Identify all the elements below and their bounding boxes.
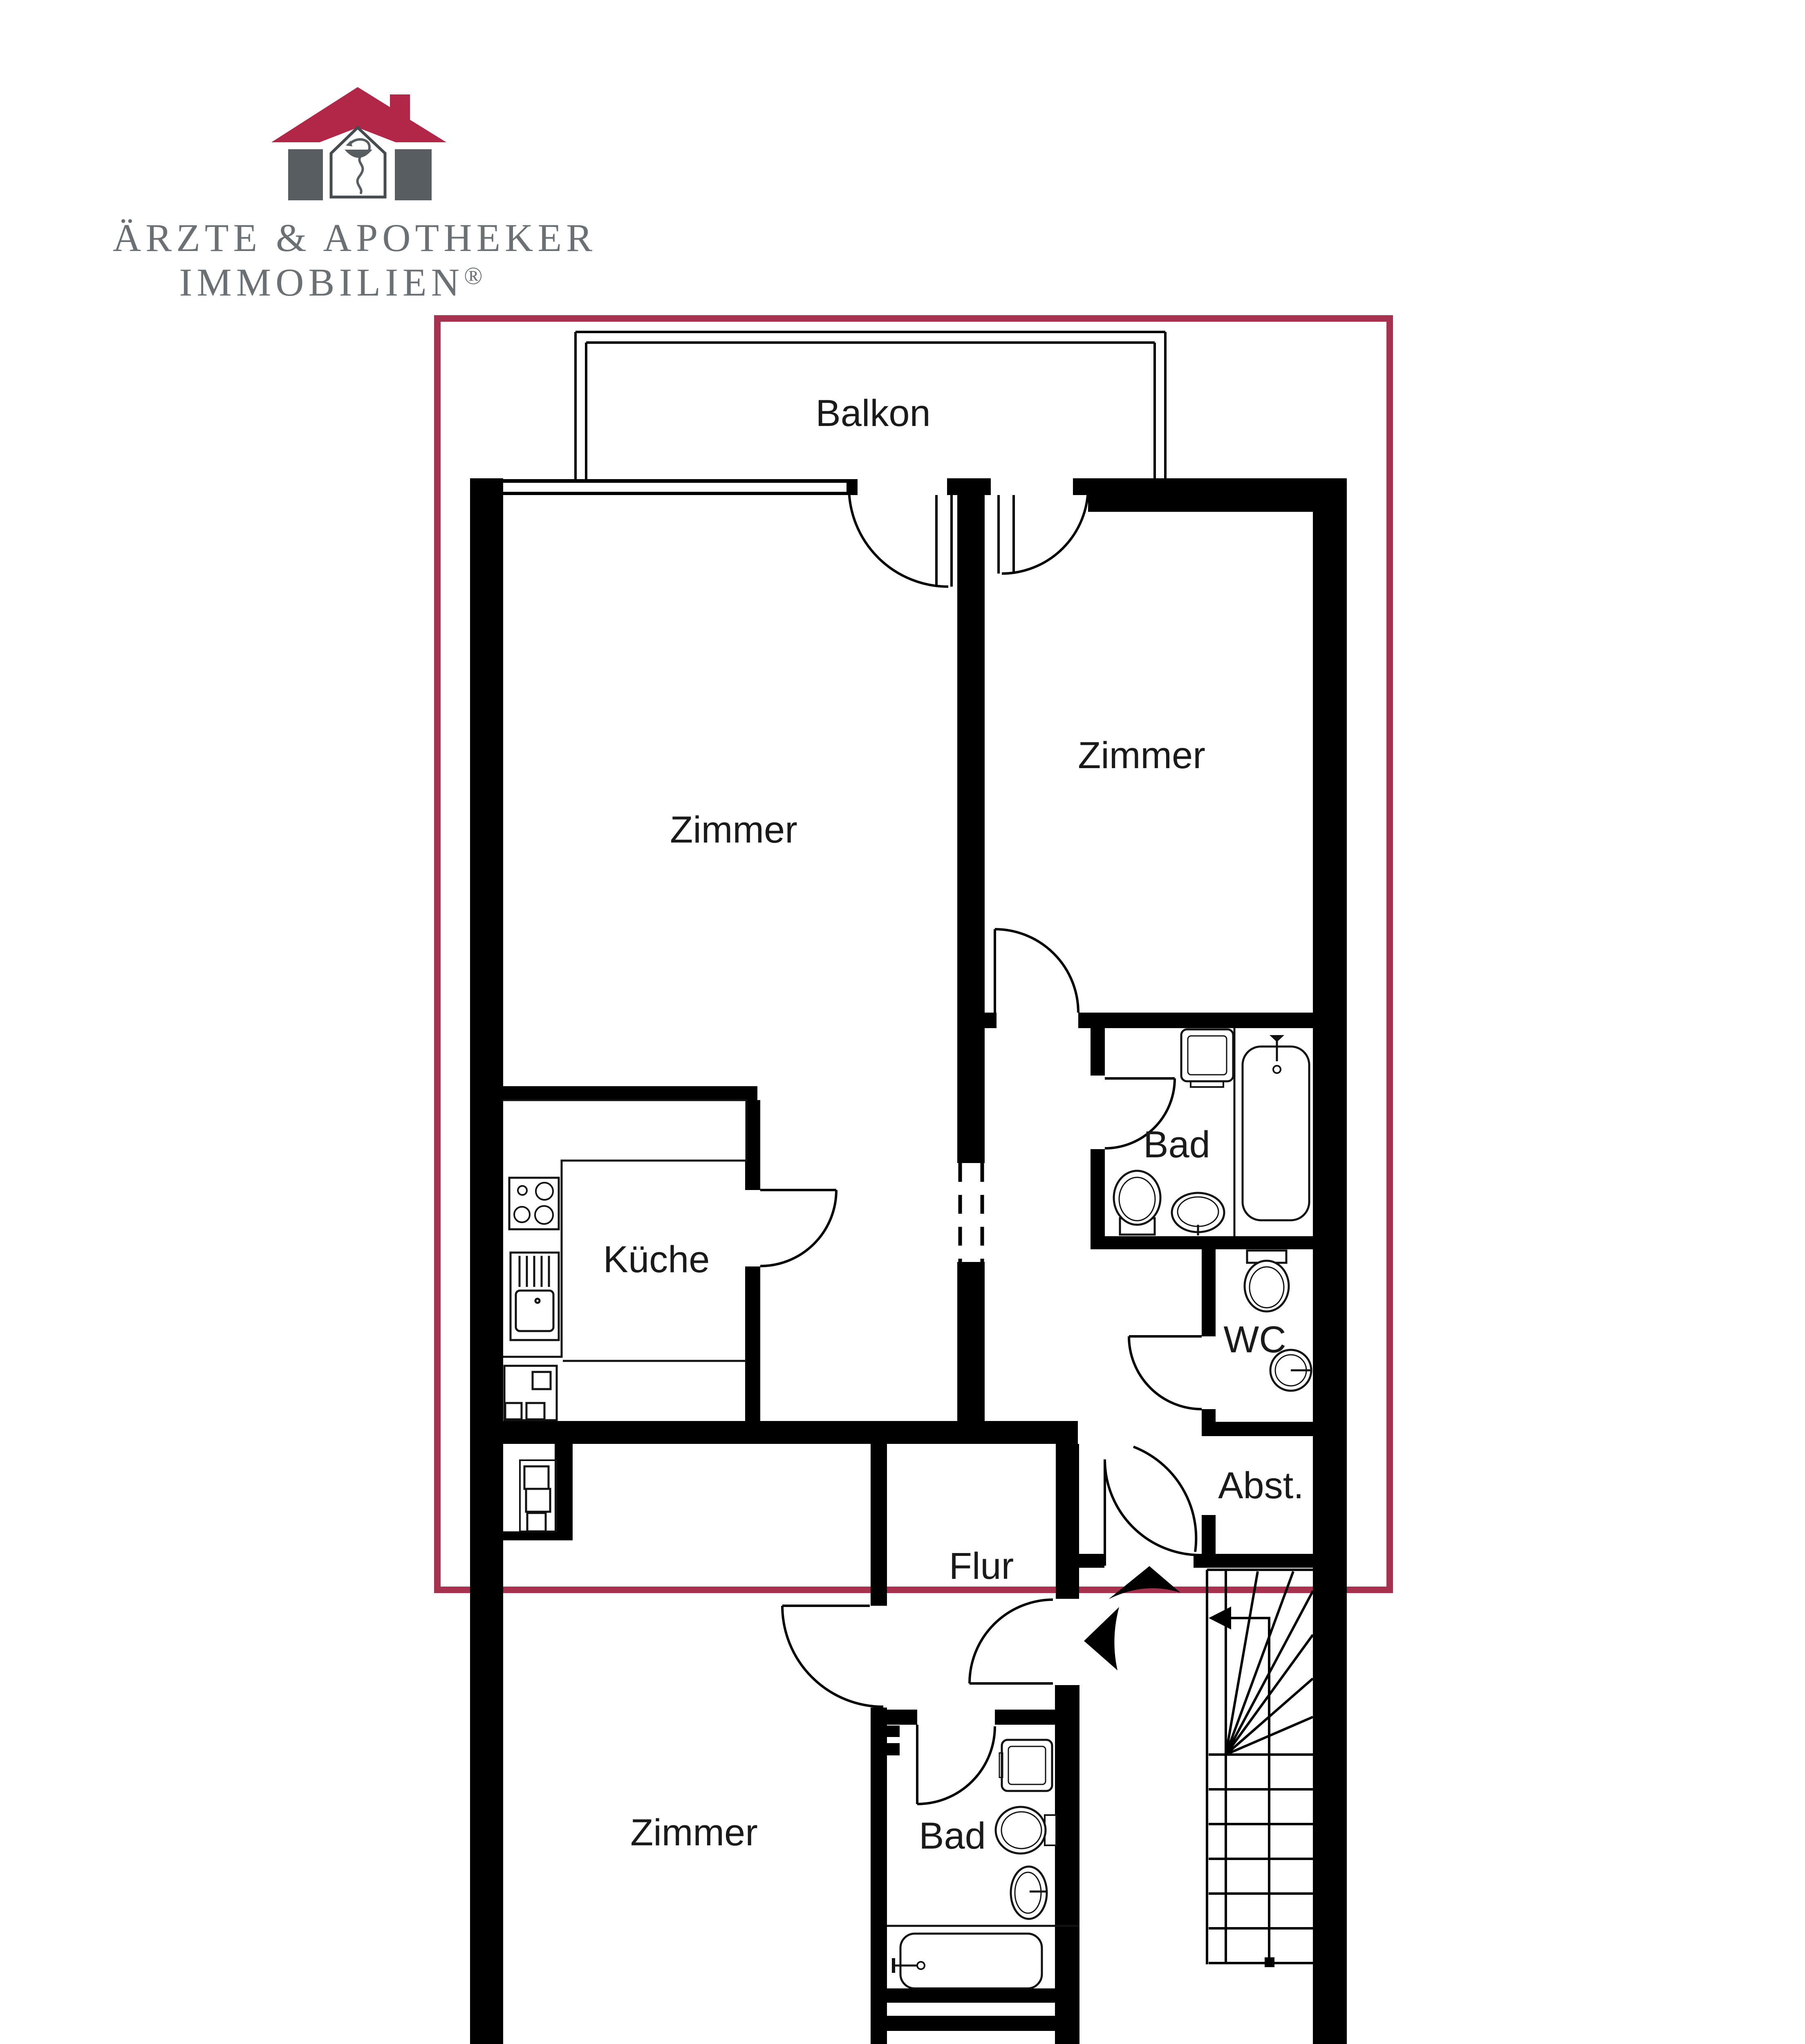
svg-text:Bad: Bad [919,1815,986,1857]
svg-text:IMMOBILIEN®: IMMOBILIEN® [179,260,487,304]
svg-text:Küche: Küche [603,1239,710,1280]
svg-text:Abst.: Abst. [1218,1465,1304,1506]
svg-text:Bad: Bad [1143,1124,1210,1165]
svg-text:Zimmer: Zimmer [630,1812,758,1853]
svg-text:WC: WC [1223,1319,1286,1360]
svg-text:Flur: Flur [949,1545,1014,1587]
svg-text:Balkon: Balkon [815,392,930,434]
svg-text:Zimmer: Zimmer [1078,735,1205,776]
svg-text:Zimmer: Zimmer [670,809,797,851]
svg-text:ÄRZTE & APOTHEKER: ÄRZTE & APOTHEKER [113,216,597,260]
